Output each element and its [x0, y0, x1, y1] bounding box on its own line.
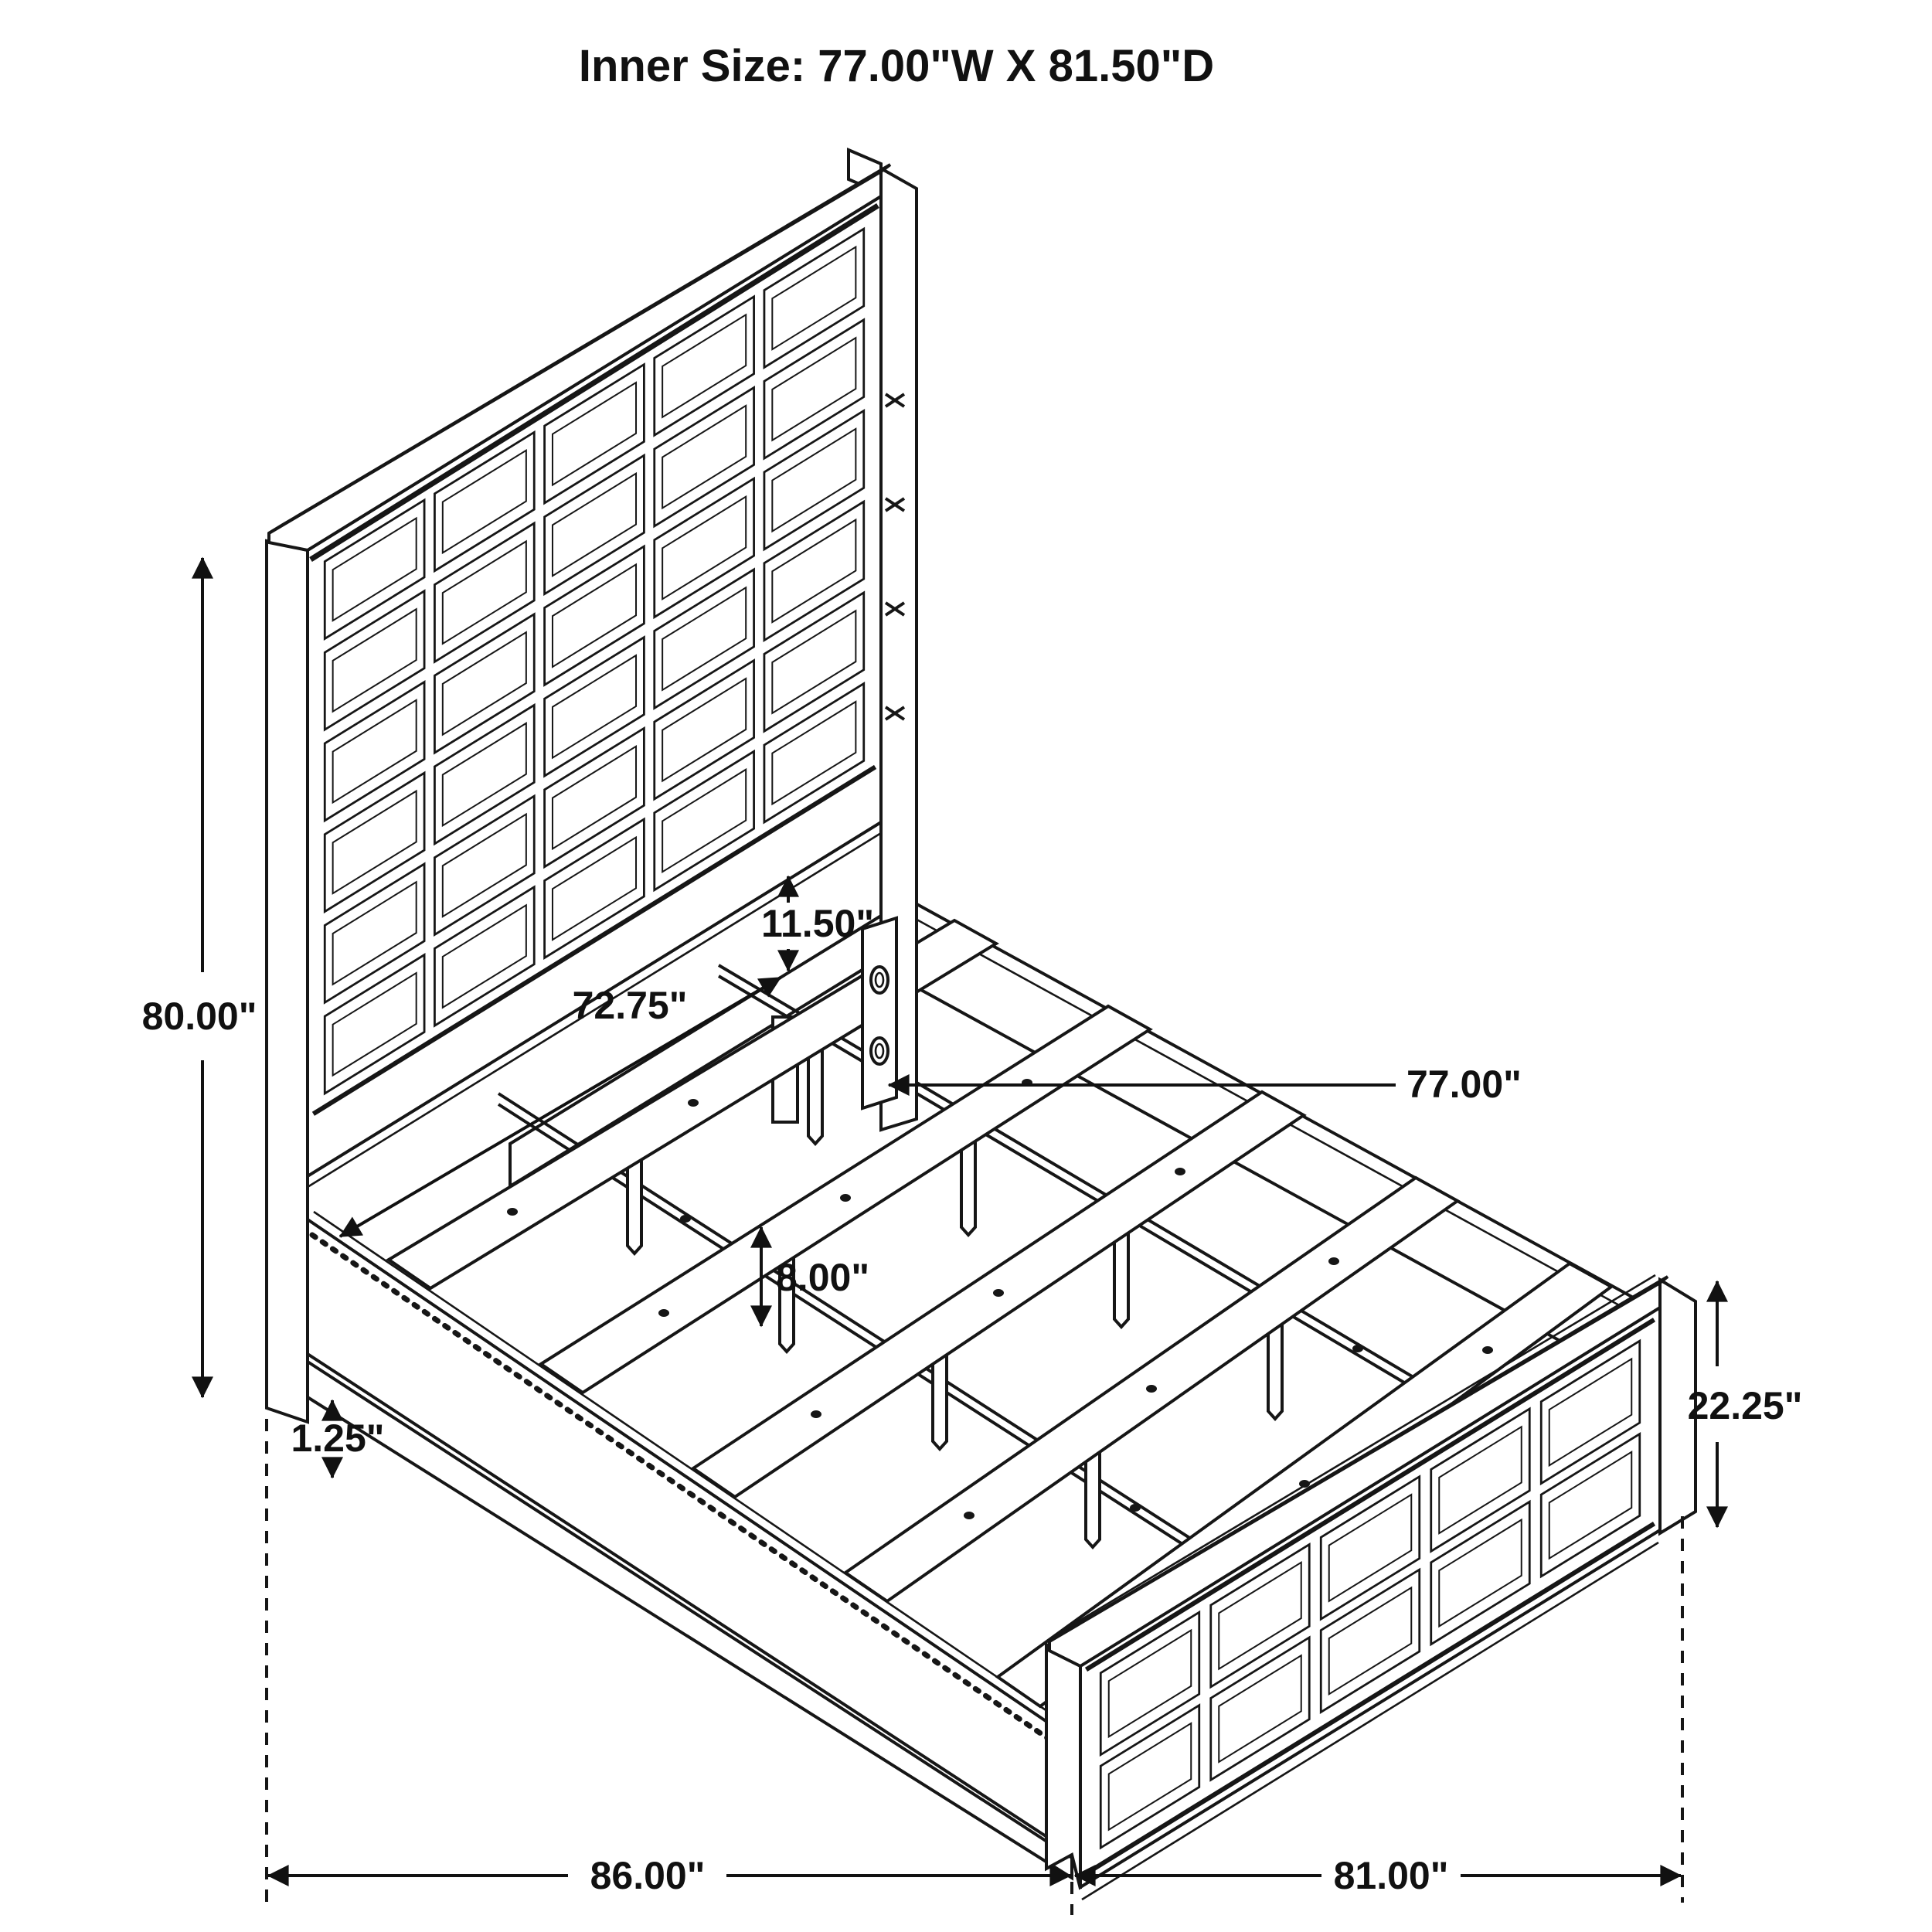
- dim-label: 1.25": [291, 1417, 384, 1460]
- dim-label: 8.00": [776, 1256, 869, 1299]
- dim-label: 72.75": [573, 984, 688, 1027]
- slat-leg: [808, 1049, 822, 1144]
- page-title: Inner Size: 77.00"W X 81.50"D: [579, 41, 1214, 91]
- dim-label: 77.00": [1406, 1063, 1522, 1106]
- slat-leg: [1086, 1453, 1100, 1547]
- headboard-left-post: [267, 541, 308, 1422]
- slat-leg: [961, 1141, 975, 1235]
- footboard-left-post: [1046, 1645, 1080, 1889]
- dim-label: 22.25": [1688, 1384, 1803, 1427]
- dim-headboard-height: 80.00": [142, 558, 257, 1397]
- dim-label: 11.50": [761, 902, 874, 945]
- dim-overall-length: 86.00": [268, 1854, 1070, 1897]
- rail-bracket: [862, 918, 896, 1108]
- dim-overall-width: 81.00": [1075, 1854, 1681, 1897]
- dim-label: 86.00": [590, 1854, 706, 1897]
- bed-dimension-diagram: Inner Size: 77.00"W X 81.50"D: [0, 0, 1932, 1932]
- slat-leg: [1114, 1233, 1128, 1327]
- dim-footboard-height: 22.25": [1688, 1281, 1803, 1527]
- slat-leg: [933, 1355, 947, 1449]
- slat-leg: [1268, 1325, 1282, 1419]
- dim-label: 80.00": [142, 995, 257, 1038]
- rail-bottom-ledge: [308, 1362, 1072, 1878]
- dim-label: 81.00": [1334, 1854, 1449, 1897]
- slat-leg: [628, 1159, 641, 1253]
